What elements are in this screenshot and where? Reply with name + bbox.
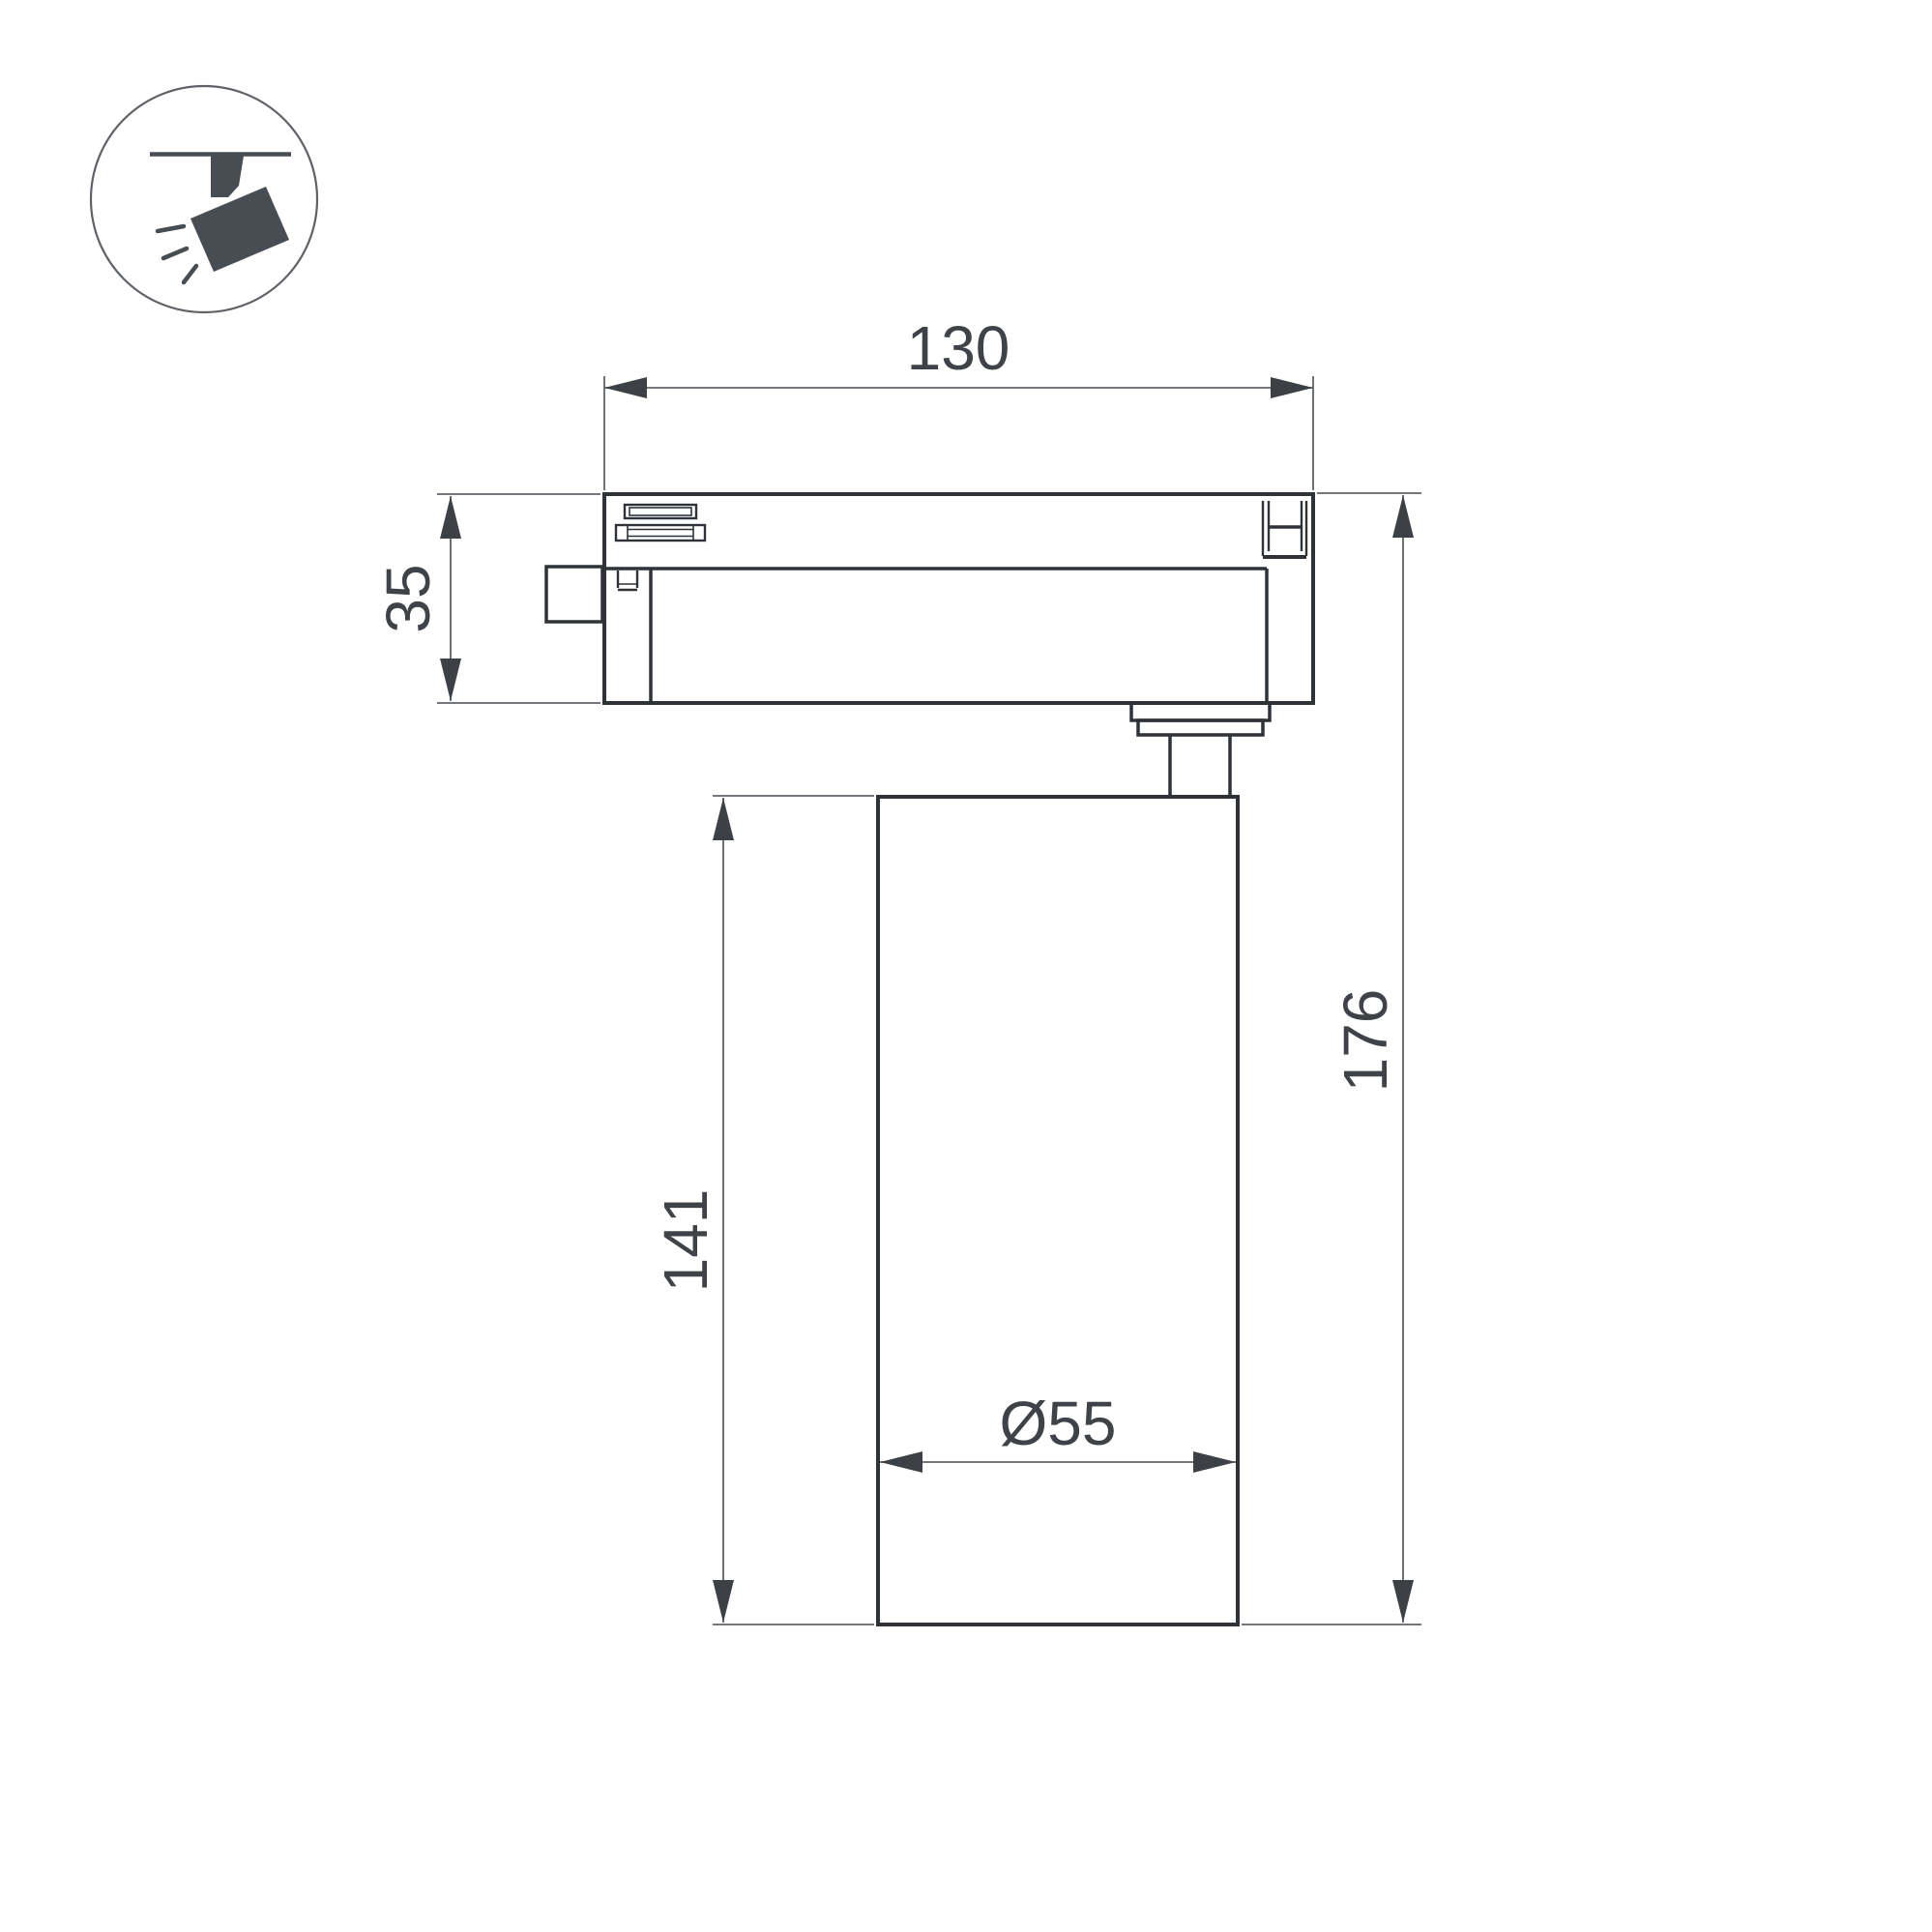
arrowhead-down <box>713 1580 734 1623</box>
arrowhead-down <box>440 659 461 701</box>
adapter-outline <box>604 494 1313 703</box>
arrowhead-up <box>440 496 461 539</box>
arrowhead-left <box>604 377 647 398</box>
arrowhead-up <box>1392 495 1414 538</box>
dimension-total-height-176: 176 <box>1242 493 1421 1625</box>
adapter-ground-contact <box>1263 501 1306 557</box>
dimension-label-width: 130 <box>907 313 1010 383</box>
contact-outer <box>616 525 705 541</box>
contact-outer <box>625 505 696 518</box>
adapter-lock-lever <box>546 567 602 622</box>
dimension-drawing: 130 35 141 176 Ø55 <box>0 0 1932 1932</box>
dimension-diameter-55: Ø55 <box>880 1389 1236 1473</box>
dimension-body-height-141: 141 <box>651 796 874 1625</box>
arrowhead-right <box>1193 1451 1236 1473</box>
dimension-width-130: 130 <box>604 313 1313 490</box>
dimension-label-body-height: 141 <box>651 1189 720 1293</box>
contact-inner <box>629 508 691 515</box>
flange-lower-step <box>1138 720 1263 735</box>
arrowhead-right <box>1271 377 1313 398</box>
track-adapter <box>546 494 1313 797</box>
dimension-label-diameter: Ø55 <box>1000 1389 1117 1458</box>
arrowhead-up <box>713 798 734 840</box>
adapter-slot <box>618 571 637 590</box>
dimension-label-total-height: 176 <box>1331 989 1400 1093</box>
adapter-contact-lower <box>616 525 705 541</box>
dimension-label-adapter-height: 35 <box>373 564 443 632</box>
icon-circle <box>91 86 317 312</box>
arrowhead-down <box>1392 1580 1414 1623</box>
track-spotlight-icon <box>91 86 317 312</box>
lamp-body-cylinder <box>878 797 1238 1625</box>
arrowhead-left <box>880 1451 922 1473</box>
mount-stem <box>1170 735 1230 797</box>
drawing-canvas: 130 35 141 176 Ø55 <box>0 0 1932 1932</box>
adapter-contact-upper <box>625 505 696 518</box>
mount-flange <box>1131 703 1270 735</box>
flange-upper-step <box>1131 703 1270 720</box>
